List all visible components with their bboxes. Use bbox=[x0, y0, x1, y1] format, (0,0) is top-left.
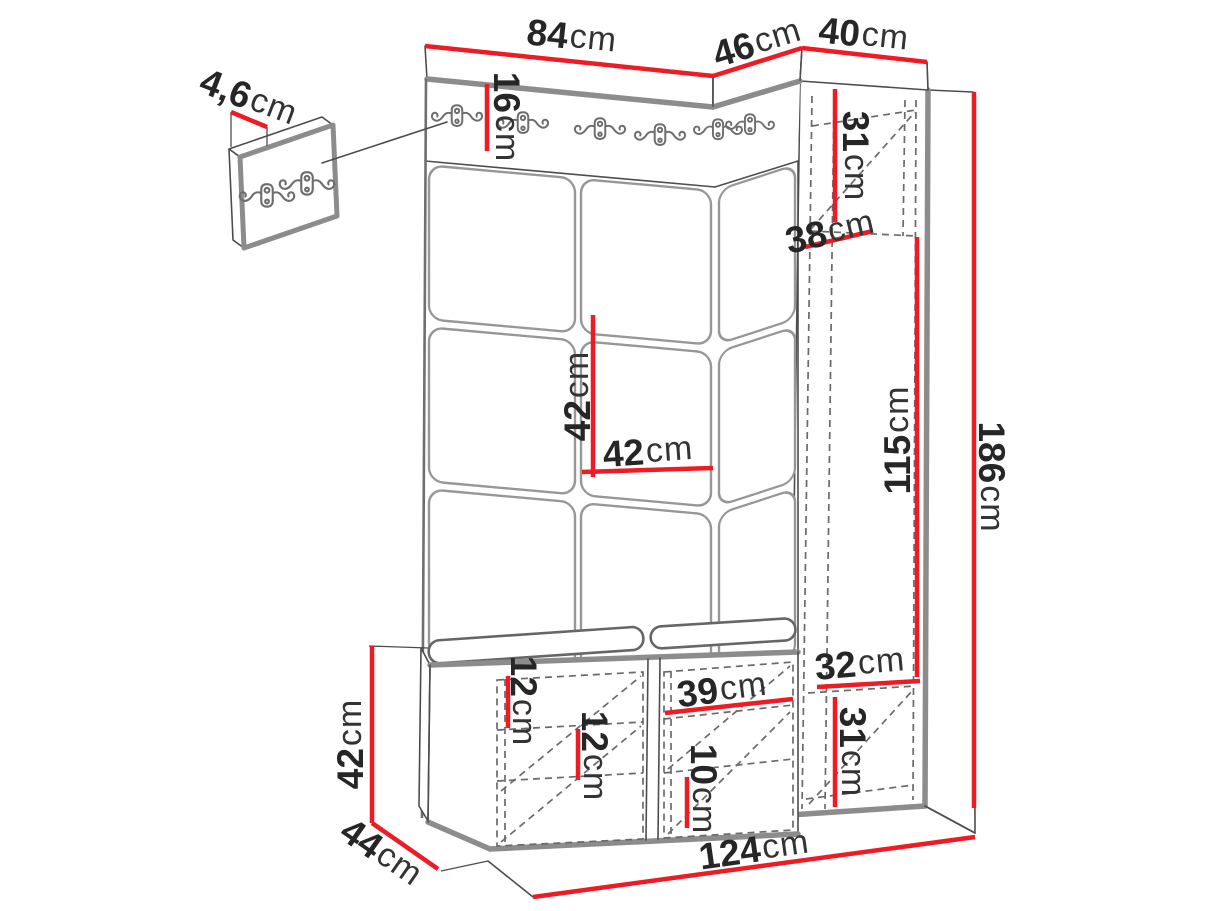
dimension-label-31cm-top: 31cm bbox=[836, 111, 877, 201]
cabinet-right-front-edge bbox=[925, 90, 928, 806]
dimension-label-42cm-vertical: 42cm bbox=[557, 351, 598, 441]
dimension-label-31cm-bottom: 31cm bbox=[833, 707, 874, 797]
dimension-label-12cm-middle: 12cm bbox=[575, 711, 616, 801]
dimension-label-186cm: 186cm bbox=[972, 421, 1013, 532]
padded-tile bbox=[429, 165, 575, 332]
padded-tile bbox=[719, 165, 795, 344]
dimension-label-42cm-horizontal: 42cm bbox=[601, 427, 694, 474]
padded-tiles-corner bbox=[719, 165, 795, 682]
padded-tile bbox=[429, 327, 575, 494]
padded-tile bbox=[719, 327, 795, 506]
dimension-label-42cm-bench: 42cm bbox=[330, 699, 371, 789]
cabinet-side-face bbox=[925, 90, 975, 833]
dimension-label-16cm: 16cm bbox=[487, 72, 528, 162]
diagram-canvas: 84cm 46cm 40cm 4,6cm 16cm 31cm 38cm 42cm… bbox=[0, 0, 1214, 911]
dimension-label-10cm: 10cm bbox=[684, 744, 725, 834]
dimension-label-115cm: 115cm bbox=[877, 385, 918, 494]
padded-tile bbox=[581, 341, 711, 507]
dimension-label-12cm-left: 12cm bbox=[504, 656, 545, 746]
padded-tile bbox=[581, 179, 711, 345]
furniture-dimension-diagram: 84cm 46cm 40cm 4,6cm 16cm 31cm 38cm 42cm… bbox=[0, 0, 1214, 911]
